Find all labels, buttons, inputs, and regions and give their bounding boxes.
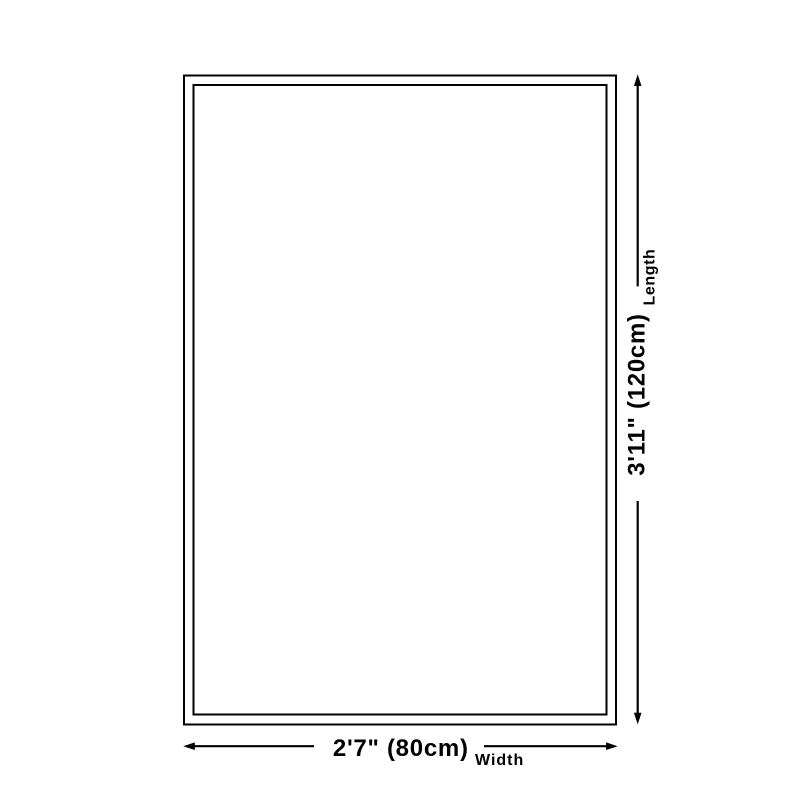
svg-text:Length: Length — [641, 249, 658, 306]
svg-text:3'11" (120cm): 3'11" (120cm) — [624, 313, 651, 476]
svg-text:2'7" (80cm): 2'7" (80cm) — [333, 735, 469, 762]
svg-text:Width: Width — [475, 752, 524, 769]
